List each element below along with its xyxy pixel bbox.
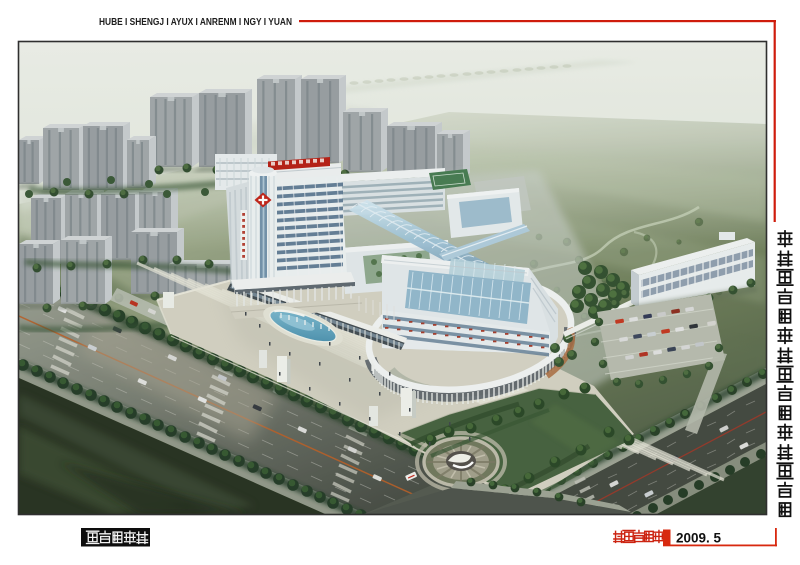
svg-text:HUBE I SHENGJ I AYUX I ANRENM: HUBE I SHENGJ I AYUX I ANRENM I NGY I YU… (99, 16, 292, 28)
svg-text:2009. 5: 2009. 5 (676, 531, 722, 546)
